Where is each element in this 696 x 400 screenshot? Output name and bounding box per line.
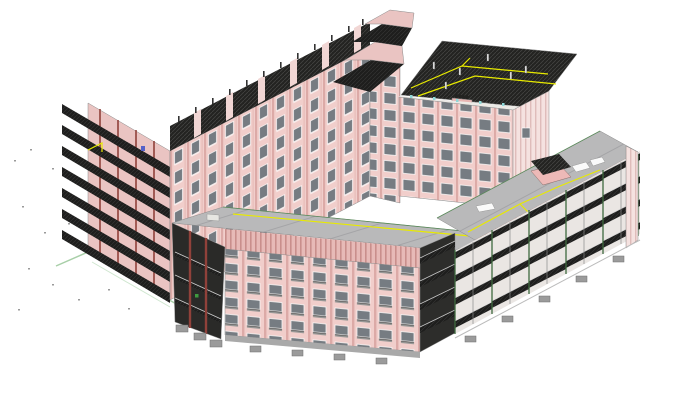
roof-skylight-box	[207, 214, 219, 221]
right-wing-end-face	[626, 146, 638, 248]
bim-viewport	[0, 0, 696, 400]
green-marker	[195, 294, 199, 298]
bim-3d-model-view	[0, 0, 696, 400]
blue-marker	[141, 146, 145, 151]
tower-roof	[401, 41, 577, 108]
tower-side-window	[522, 128, 530, 138]
front-corner-bays	[420, 233, 455, 352]
